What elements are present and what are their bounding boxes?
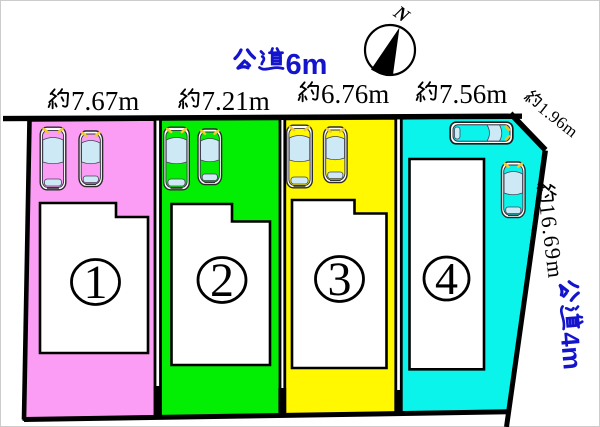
svg-text:1: 1 <box>84 256 108 309</box>
svg-text:7.56m: 7.56m <box>439 79 507 109</box>
svg-text:4: 4 <box>435 253 458 304</box>
svg-text:6m: 6m <box>286 49 328 81</box>
svg-text:2: 2 <box>210 254 234 307</box>
svg-text:6.76m: 6.76m <box>321 79 389 109</box>
svg-text:3: 3 <box>328 253 352 306</box>
svg-text:7.21m: 7.21m <box>202 86 270 116</box>
svg-text:4m: 4m <box>555 331 588 371</box>
svg-text:7.67m: 7.67m <box>71 86 139 116</box>
